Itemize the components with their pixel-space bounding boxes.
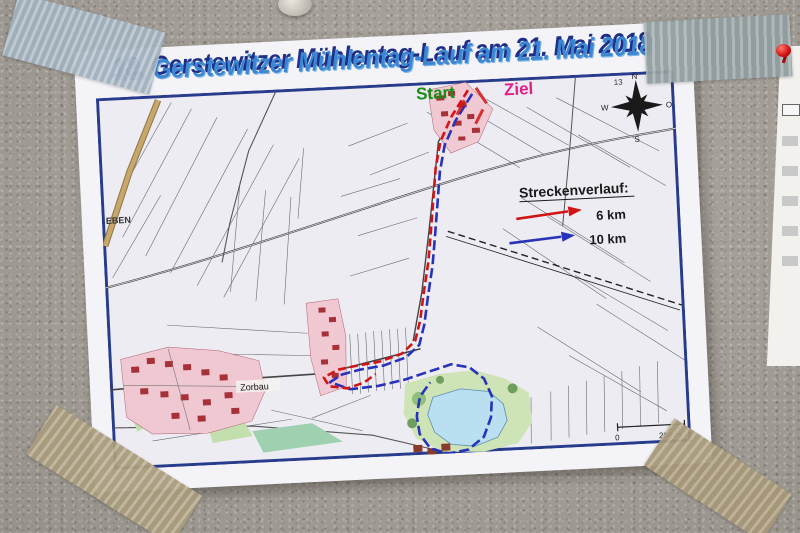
adjacent-paper-box [782,196,798,206]
compass-e: O [666,100,673,109]
town-label-eben: EBEN [106,215,131,226]
poster: 18. Gerstewitzer Mühlentag-Lauf am 21. M… [74,21,713,493]
grid-number: 13 [614,78,624,87]
compass-n: N [631,72,637,81]
compass-w: W [601,103,609,112]
adjacent-paper-box [782,166,798,176]
tape-bottom-right [644,418,792,533]
compass-s: S [634,135,640,144]
adjacent-paper-box [782,136,798,146]
legend-label-6km: 6 km [596,207,626,223]
adjacent-paper-box [782,226,798,236]
route-map: Start Ziel Streckenverlauf: 6 km 10 km E… [96,70,691,470]
town-label-zorbau: Zorbau [240,381,269,392]
legend-label-10km: 10 km [589,231,627,248]
start-label: Start [416,83,456,104]
adjacent-paper [764,46,800,366]
pushpin-icon [774,42,794,62]
pushpin-head [776,44,791,57]
tape-top-right [643,14,792,84]
topographic-map: Start Ziel Streckenverlauf: 6 km 10 km E… [96,70,691,470]
photo-scene: 18. Gerstewitzer Mühlentag-Lauf am 21. M… [0,0,800,533]
pebble [278,0,312,16]
adjacent-paper-box [782,256,798,266]
ziel-label: Ziel [504,79,534,99]
adjacent-paper-box [782,104,800,116]
